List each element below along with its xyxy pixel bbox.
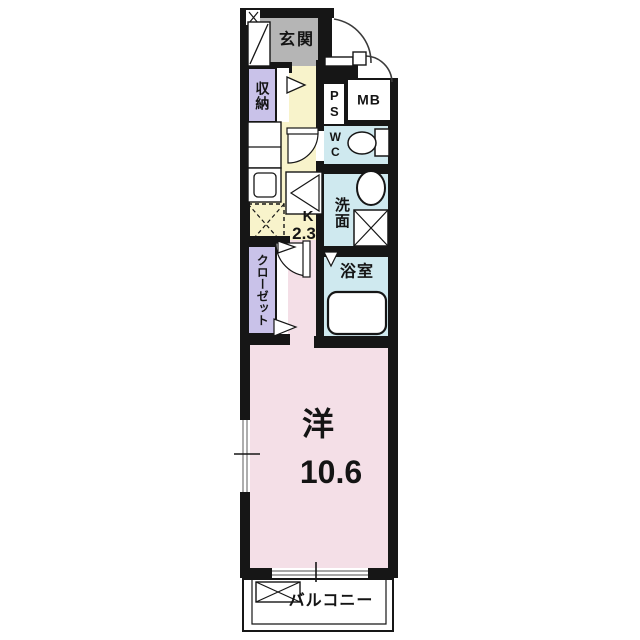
wall-entrance-right	[318, 8, 332, 68]
wall-bottom-left	[240, 568, 272, 578]
wall-closet-bottom	[246, 334, 290, 345]
label-kitchen-size: 2.3	[292, 225, 316, 243]
label-bathroom: 浴室	[340, 265, 374, 282]
label-wc: WC	[329, 130, 342, 160]
entrance-door-arc	[334, 19, 371, 63]
label-closet: クローゼット	[256, 254, 269, 326]
label-western-room-size: 10.6	[300, 456, 362, 490]
label-storage: 収納	[255, 81, 270, 111]
floor-plan: 玄関 収納 PS MB WC 洗面 K 2.3 浴室 クローゼット 洋 10.6…	[0, 0, 640, 640]
room-western-strip	[288, 240, 316, 348]
wall-washroom-bath	[316, 246, 398, 257]
wall-right	[388, 78, 398, 578]
window-left-gap	[240, 420, 250, 492]
label-western-room: 洋	[302, 408, 334, 442]
window-bottom-gap	[272, 568, 368, 578]
wall-wc-washroom	[316, 164, 398, 174]
wall-bottom-right	[368, 568, 398, 578]
wall-closet-top	[246, 236, 290, 246]
label-mb: MB	[357, 93, 381, 108]
label-ps: PS	[327, 88, 341, 120]
wall-bath-bottom	[314, 336, 398, 348]
closet-door-strip	[276, 246, 288, 334]
label-genkan: 玄関	[279, 33, 315, 50]
label-balcony: バルコニー	[289, 594, 374, 611]
wall-bath-left	[316, 257, 324, 348]
doorway-wc	[316, 131, 324, 161]
storage-door-strip	[276, 68, 289, 122]
label-washroom: 洗面	[333, 197, 349, 229]
label-kitchen: K	[303, 209, 314, 225]
